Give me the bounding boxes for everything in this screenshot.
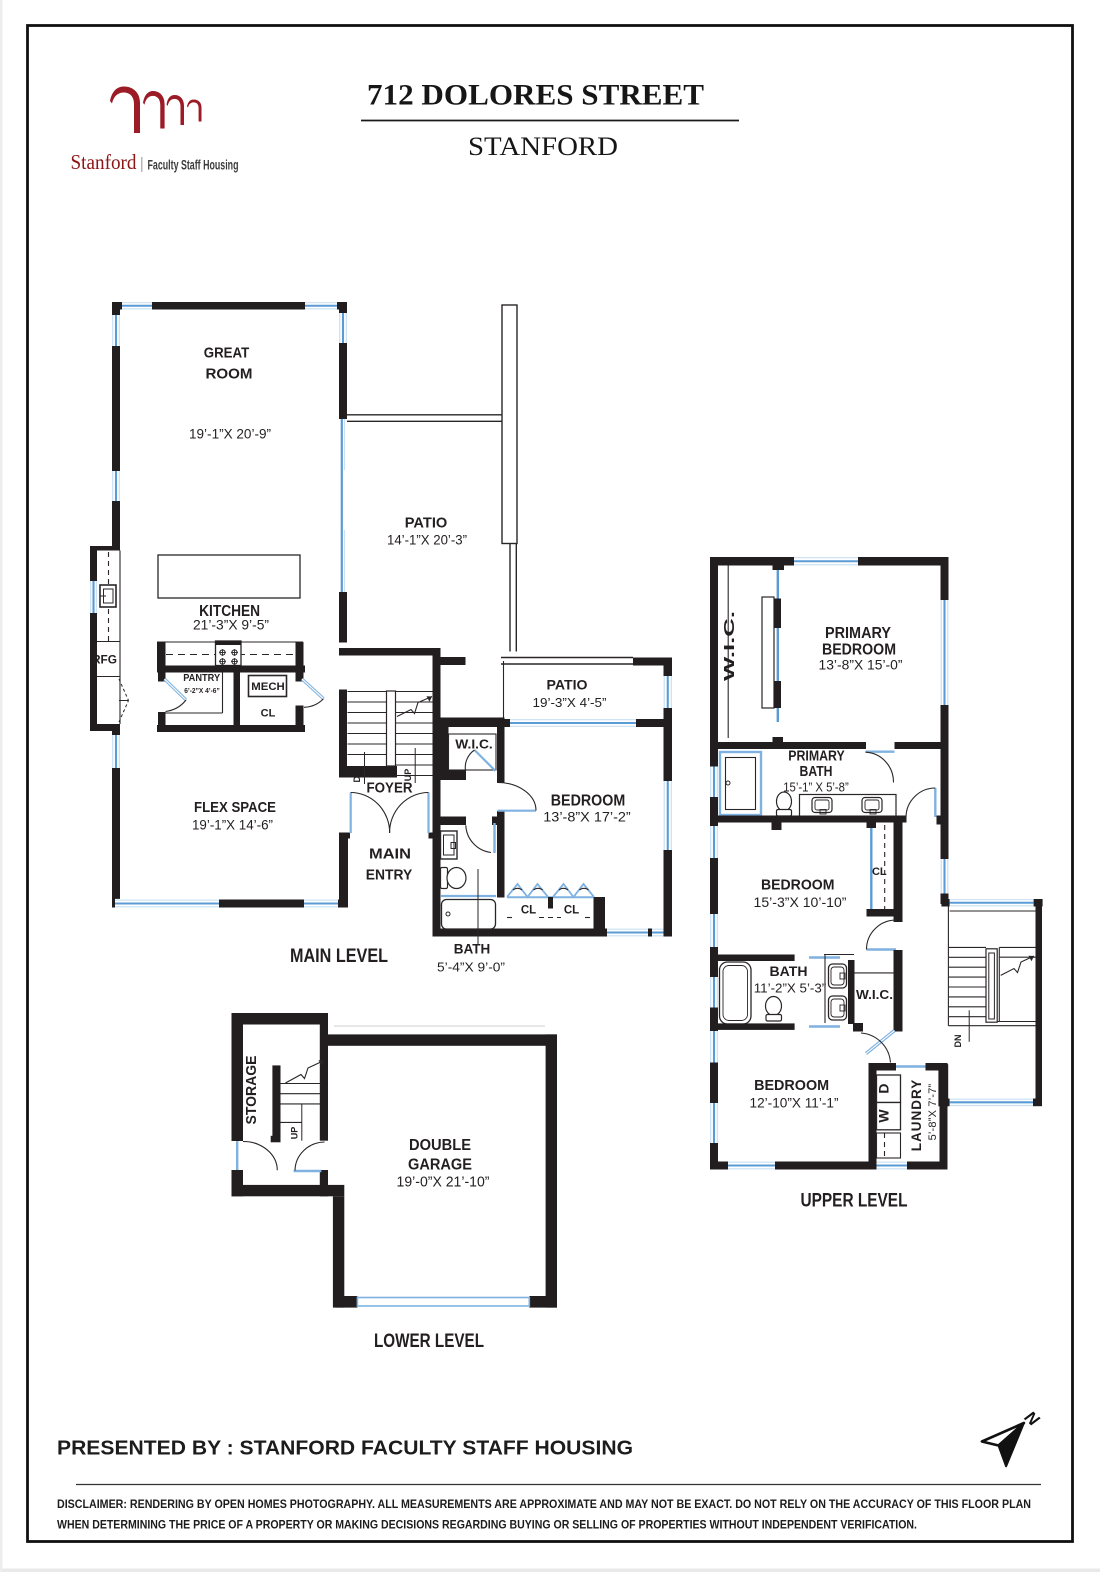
svg-text:BATH: BATH <box>454 941 491 957</box>
svg-text:W.I.C.: W.I.C. <box>856 987 893 1002</box>
svg-text:11’-2”X 5’-3”: 11’-2”X 5’-3” <box>754 981 827 996</box>
svg-text:PANTRY: PANTRY <box>183 673 220 684</box>
svg-text:W.I.C.: W.I.C. <box>455 737 493 752</box>
svg-text:GREAT: GREAT <box>204 345 250 362</box>
svg-text:CL: CL <box>872 866 887 878</box>
svg-text:WHEN DETERMINING THE PRICE OF: WHEN DETERMINING THE PRICE OF A PROPERTY… <box>57 1518 917 1532</box>
svg-text:PATIO: PATIO <box>547 677 588 693</box>
svg-text:GARAGE: GARAGE <box>408 1157 472 1174</box>
svg-text:UPPER LEVEL: UPPER LEVEL <box>801 1190 908 1212</box>
svg-text:ENTRY: ENTRY <box>366 868 413 884</box>
svg-text:MAIN: MAIN <box>369 847 411 863</box>
svg-text:19’-1”X 14’-6”: 19’-1”X 14’-6” <box>192 817 273 833</box>
svg-text:D: D <box>876 1083 892 1093</box>
svg-text:13’-8”X 15’-0”: 13’-8”X 15’-0” <box>819 658 903 673</box>
svg-text:DOUBLE: DOUBLE <box>409 1137 471 1154</box>
svg-text:15’-3”X 10’-10”: 15’-3”X 10’-10” <box>754 894 847 910</box>
svg-text:BATH: BATH <box>800 764 833 780</box>
svg-text:21’-3”X 9’-5”: 21’-3”X 9’-5” <box>193 617 269 633</box>
svg-text:MAIN LEVEL: MAIN LEVEL <box>290 945 388 967</box>
svg-text:5’-8”X 7’-7”: 5’-8”X 7’-7” <box>927 1083 939 1140</box>
svg-text:13’-8”X 17’-2”: 13’-8”X 17’-2” <box>543 810 631 825</box>
svg-text:PRIMARY: PRIMARY <box>825 625 892 642</box>
svg-text:ROOM: ROOM <box>206 366 253 383</box>
svg-text:BEDROOM: BEDROOM <box>761 877 835 894</box>
svg-text:15’-1” X 5’-8”: 15’-1” X 5’-8” <box>783 781 849 795</box>
svg-text:UP: UP <box>403 769 413 782</box>
svg-text:14’-1”X 20’-3”: 14’-1”X 20’-3” <box>387 533 467 548</box>
svg-text:PATIO: PATIO <box>405 515 448 532</box>
svg-text:PRIMARY: PRIMARY <box>788 749 845 765</box>
svg-text:W.I.C.: W.I.C. <box>721 611 738 681</box>
svg-text:6’-2”X 4’-6”: 6’-2”X 4’-6” <box>184 686 220 695</box>
svg-text:19’-0”X 21’-10”: 19’-0”X 21’-10” <box>397 1175 490 1191</box>
svg-text:FLEX SPACE: FLEX SPACE <box>194 799 276 816</box>
svg-text:STANFORD: STANFORD <box>468 132 618 161</box>
svg-text:BEDROOM: BEDROOM <box>551 793 626 810</box>
svg-text:LAUNDRY: LAUNDRY <box>909 1079 924 1152</box>
svg-text:LOWER LEVEL: LOWER LEVEL <box>374 1330 484 1352</box>
svg-text:BEDROOM: BEDROOM <box>822 642 896 659</box>
svg-text:BATH: BATH <box>770 963 808 979</box>
svg-text:DN: DN <box>352 770 362 783</box>
svg-text:BEDROOM: BEDROOM <box>754 1077 829 1094</box>
svg-text:DN: DN <box>953 1035 963 1048</box>
svg-text:DISCLAIMER: RENDERING BY OPEN: DISCLAIMER: RENDERING BY OPEN HOMES PHOT… <box>57 1497 1031 1511</box>
svg-text:Stanford: Stanford <box>71 150 137 174</box>
svg-text:19’-3”X 4’-5”: 19’-3”X 4’-5” <box>533 695 607 710</box>
svg-text:CL: CL <box>564 905 579 917</box>
svg-text:W: W <box>876 1109 892 1123</box>
svg-text:FOYER: FOYER <box>367 781 413 797</box>
svg-text:STORAGE: STORAGE <box>243 1056 260 1125</box>
svg-text:5’-4”X 9’-0”: 5’-4”X 9’-0” <box>437 960 505 975</box>
svg-text:UP: UP <box>290 1127 300 1140</box>
svg-text:CL: CL <box>521 905 536 917</box>
svg-text:CL: CL <box>261 708 276 720</box>
svg-text:12’-10”X 11’-1”: 12’-10”X 11’-1” <box>750 1095 839 1111</box>
svg-text:RFG: RFG <box>92 653 117 667</box>
svg-text:Faculty Staff Housing: Faculty Staff Housing <box>148 157 239 173</box>
svg-text:19’-1”X 20’-9”: 19’-1”X 20’-9” <box>189 426 271 442</box>
svg-text:PRESENTED BY : STANFORD FACULT: PRESENTED BY : STANFORD FACULTY STAFF HO… <box>57 1438 633 1460</box>
svg-text:MECH: MECH <box>251 681 285 693</box>
svg-text:712 DOLORES STREET: 712 DOLORES STREET <box>367 79 704 112</box>
